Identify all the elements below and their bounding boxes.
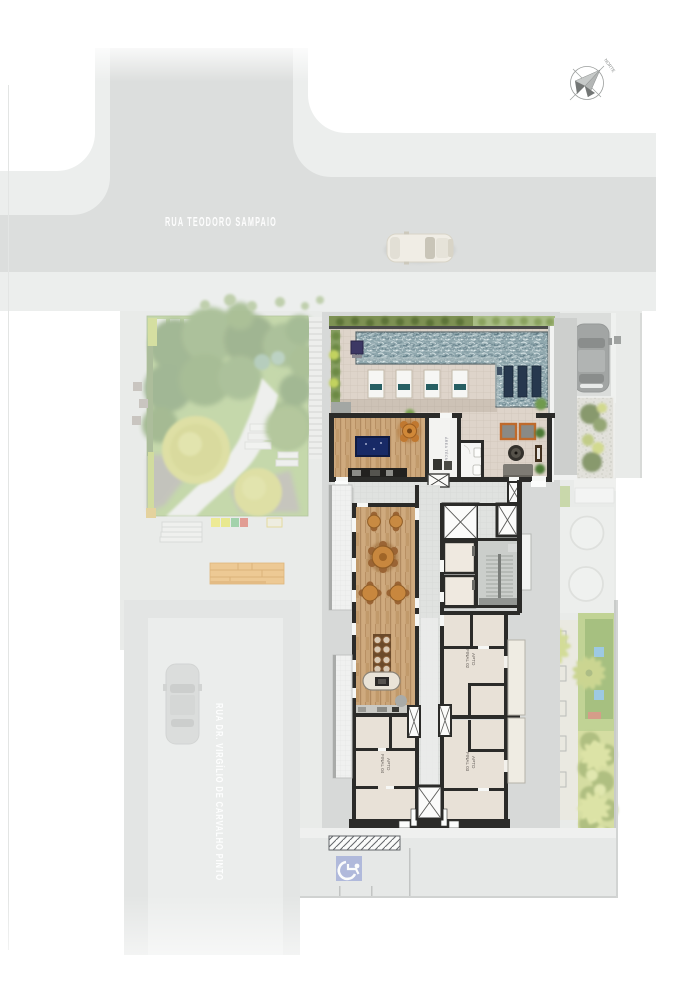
svg-text:FINAL 02: FINAL 02 [465, 649, 470, 669]
svg-text:APTO: APTO [471, 756, 476, 769]
svg-text:APTO: APTO [386, 758, 391, 771]
svg-text:APTO: APTO [471, 653, 476, 666]
svg-text:FINAL 04: FINAL 04 [380, 754, 385, 774]
svg-text:RUA TEODORO SAMPAIO: RUA TEODORO SAMPAIO [165, 215, 277, 229]
svg-text:FINAL 03: FINAL 03 [465, 752, 470, 772]
svg-text:RUA DR. VIRGÍLIO DE CARVALHO P: RUA DR. VIRGÍLIO DE CARVALHO PINTO [213, 703, 226, 881]
